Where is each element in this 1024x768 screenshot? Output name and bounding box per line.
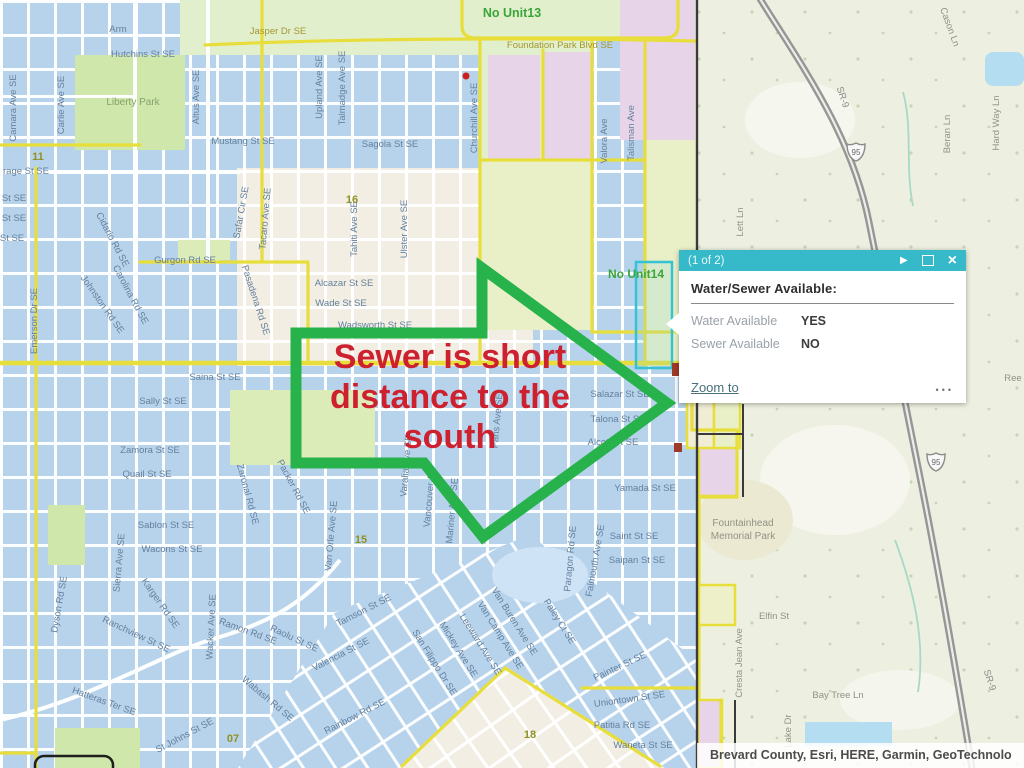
street-label: Beran Ln <box>942 115 953 154</box>
field-row: Water Available YES <box>691 314 954 328</box>
street-label: Emerson Dr SE <box>29 288 40 354</box>
street-label: Sagola St SE <box>362 139 419 150</box>
next-feature-icon[interactable]: ▶ <box>900 256 908 266</box>
section-number: 11 <box>32 151 44 163</box>
street-label: rage St SE <box>3 166 49 177</box>
section-number: 18 <box>524 729 536 741</box>
map-viewport[interactable]: 95 95 No Unit13No Unit141116151807Jasper… <box>0 0 1024 768</box>
street-label: St SE <box>2 193 26 204</box>
street-label: Hard Way Ln <box>991 95 1002 150</box>
street-label: Arm <box>109 24 127 35</box>
red-dot-marker <box>463 73 470 80</box>
street-label: Patitia Rd SE <box>594 720 651 731</box>
road-label: Jasper Dr SE <box>250 26 307 37</box>
maximize-icon[interactable] <box>922 255 934 266</box>
street-label: Sally St SE <box>139 396 187 407</box>
more-options-icon[interactable]: ••• <box>936 385 954 395</box>
street-label: St SE <box>2 213 26 224</box>
street-label: Waneta St SE <box>613 740 672 751</box>
street-label: Ree <box>1004 373 1021 384</box>
map-attribution: Brevard County, Esri, HERE, Garmin, GeoT… <box>697 743 1024 768</box>
svg-text:distance to the: distance to the <box>330 378 570 416</box>
svg-text:95: 95 <box>932 458 941 467</box>
street-label: Wacons St SE <box>142 544 203 555</box>
field-label: Water Available <box>691 314 795 328</box>
street-label: Ulster Ave SE <box>399 200 410 258</box>
street-label: Yamada St SE <box>614 483 676 494</box>
street-label: Tahiti Ave SE <box>349 201 360 257</box>
close-icon[interactable]: × <box>948 253 957 269</box>
field-value: YES <box>801 314 826 328</box>
section-number: 15 <box>355 534 367 546</box>
street-label: Mustang St SE <box>211 136 274 147</box>
street-label: Saina St SE <box>189 372 240 383</box>
street-label: Upland Ave SE <box>314 55 325 119</box>
park-label: Fountainhead <box>712 518 773 529</box>
unit-label: No Unit14 <box>608 267 664 281</box>
attribution-text: Brevard County, Esri, HERE, Garmin, GeoT… <box>710 748 1012 762</box>
svg-text:95: 95 <box>852 148 861 157</box>
street-label: Talmadge Ave SE <box>337 51 348 126</box>
street-label: Saint St SE <box>610 531 659 542</box>
field-label: Sewer Available <box>691 337 795 351</box>
popup-pager: (1 of 2) <box>688 255 724 267</box>
zoom-to-link[interactable]: Zoom to <box>691 380 739 395</box>
section-number: 07 <box>227 733 239 745</box>
street-label: Gurgon Rd SE <box>154 255 216 266</box>
field-row: Sewer Available NO <box>691 337 954 351</box>
street-label: Quail St SE <box>122 469 171 480</box>
street-label: Hutchins St SE <box>111 49 175 60</box>
popup-title: Water/Sewer Available: <box>691 281 954 296</box>
street-label: Lett Ln <box>735 207 746 236</box>
street-label: Carlie Ave SE <box>56 76 67 134</box>
unit-label: No Unit13 <box>483 6 541 20</box>
field-value: NO <box>801 337 820 351</box>
svg-text:Sewer is short: Sewer is short <box>334 338 566 376</box>
street-label: Churchill Ave SE <box>469 83 480 154</box>
street-label: Salazar St SE <box>590 389 649 400</box>
street-label: Cresta Jean Ave <box>734 628 745 698</box>
popup-pointer <box>666 313 679 335</box>
street-label: Zamora St SE <box>120 445 180 456</box>
park-label: Liberty Park <box>106 97 160 108</box>
street-label: Camara Ave SE <box>8 74 19 141</box>
street-label: Bay Tree Ln <box>812 690 863 701</box>
street-label: Alcazar St SE <box>315 278 374 289</box>
street-label: Saipan St SE <box>609 555 666 566</box>
street-label: Altus Ave SE <box>191 70 202 125</box>
svg-text:south: south <box>404 418 497 456</box>
popup-header[interactable]: (1 of 2) ▶ × <box>679 250 966 271</box>
street-label: St SE <box>0 233 24 244</box>
street-label: Sablon St SE <box>138 520 195 531</box>
road-label: Foundation Park Blvd SE <box>507 40 613 51</box>
street-label: Talisman Ave <box>626 105 637 161</box>
street-label: Valora Ave <box>599 118 610 163</box>
street-label: Elfin St <box>759 611 789 622</box>
park-label: Memorial Park <box>711 531 776 542</box>
popup-body: Water/Sewer Available: Water Available Y… <box>679 271 966 351</box>
popup-divider <box>691 303 954 304</box>
street-label: Wade St SE <box>315 298 366 309</box>
feature-popup: (1 of 2) ▶ × Water/Sewer Available: Wate… <box>679 250 966 403</box>
popup-footer: Zoom to ••• <box>691 380 954 395</box>
